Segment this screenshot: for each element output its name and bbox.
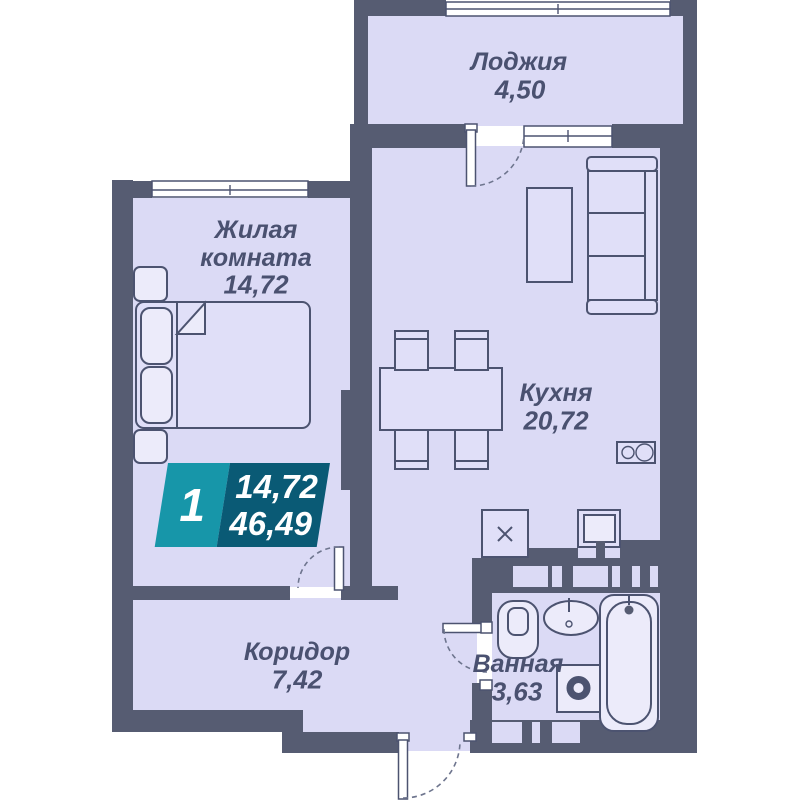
kitchen-name: Кухня <box>520 380 593 406</box>
kitchen-appliance-box <box>482 510 528 557</box>
sofa <box>587 157 657 314</box>
window-loggia-top <box>446 2 670 16</box>
wall-shaft-nib-2 <box>620 540 660 558</box>
chair-bottom-left <box>395 430 428 469</box>
coffee-table <box>527 188 572 282</box>
living-name-line1: Жилая <box>215 217 298 243</box>
chair-top-left <box>395 331 428 370</box>
wall-corridor-kitchen-stub <box>341 586 398 600</box>
dining-table <box>380 368 502 430</box>
wall-living-top-right <box>308 181 352 198</box>
loggia-name: Лоджия <box>471 49 567 75</box>
wall-loggia-top-left <box>354 0 446 16</box>
floor-plan: Лоджия 4,50 Жилая комната 14,72 Кухня 20… <box>0 0 800 800</box>
living-area: 14,72 <box>223 271 288 298</box>
floor-plan-drawing <box>0 0 800 800</box>
wall-corridor-bottom <box>112 710 303 732</box>
wall-right-outer <box>660 124 697 753</box>
bathtub <box>600 595 658 731</box>
wall-pilaster <box>341 390 372 490</box>
area-badge: 1 14,72 46,49 <box>155 463 330 547</box>
window-kitchen-loggia <box>524 126 612 147</box>
living-area-value: 14,72 <box>235 468 318 505</box>
living-name-line2: комната <box>200 245 312 271</box>
corridor-area: 7,42 <box>272 666 323 693</box>
rooms-count: 1 <box>180 478 206 532</box>
loggia-area: 4,50 <box>495 76 546 103</box>
wall-living-top-left <box>133 181 152 198</box>
chair-top-right <box>455 331 488 370</box>
wall-loggia-left <box>354 0 368 126</box>
wall-loggia-right <box>683 0 697 126</box>
wall-living-bottom <box>133 586 290 600</box>
pillow-top <box>141 308 172 364</box>
wall-loggia-bottom-left <box>354 124 467 148</box>
cooktop <box>617 442 655 463</box>
nightstand-top <box>134 267 167 301</box>
room-corridor-lower <box>303 710 398 732</box>
bathroom-name: Ванная <box>473 651 564 677</box>
window-living <box>152 181 308 197</box>
wall-kitchen-left <box>350 124 372 600</box>
chair-bottom-right <box>455 430 488 469</box>
bathroom-area: 3,63 <box>492 678 543 705</box>
wall-entry-step <box>282 732 399 753</box>
room-entry-passage <box>398 560 472 751</box>
corridor-name: Коридор <box>244 639 350 665</box>
total-area-value: 46,49 <box>229 505 312 542</box>
kitchen-area: 20,72 <box>523 407 588 434</box>
pillow-bottom <box>141 367 172 423</box>
wall-left-outer <box>112 180 133 732</box>
nightstand-bottom <box>134 430 167 463</box>
area-badge-values: 14,72 46,49 <box>217 463 330 547</box>
